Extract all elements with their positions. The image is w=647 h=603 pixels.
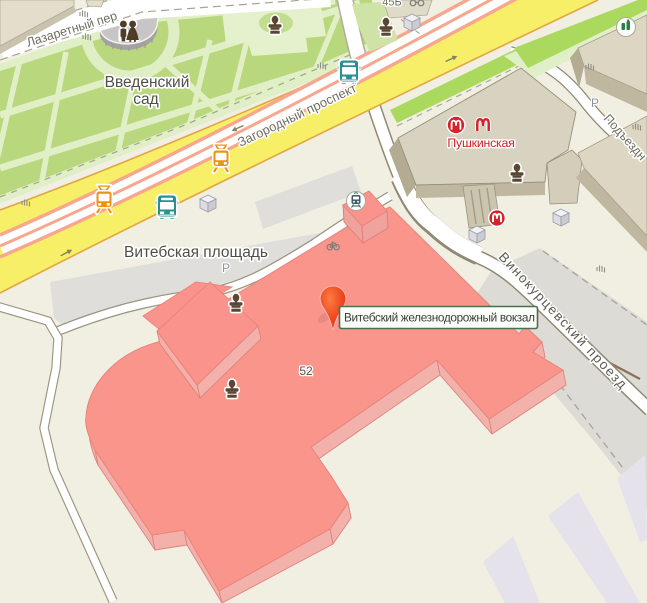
svg-text:Витебская площадь: Витебская площадь	[124, 244, 268, 261]
svg-text:Витебский железнодорожный вокз: Витебский железнодорожный вокзал	[344, 311, 535, 325]
svg-text:52: 52	[299, 364, 313, 378]
svg-text:Р: Р	[222, 261, 230, 275]
svg-text:45Б: 45Б	[382, 0, 401, 9]
svg-text:Введенский: Введенский	[105, 74, 190, 91]
svg-text:Пушкинская: Пушкинская	[447, 136, 514, 150]
svg-text:сад: сад	[133, 91, 158, 108]
svg-text:Р: Р	[591, 96, 599, 110]
